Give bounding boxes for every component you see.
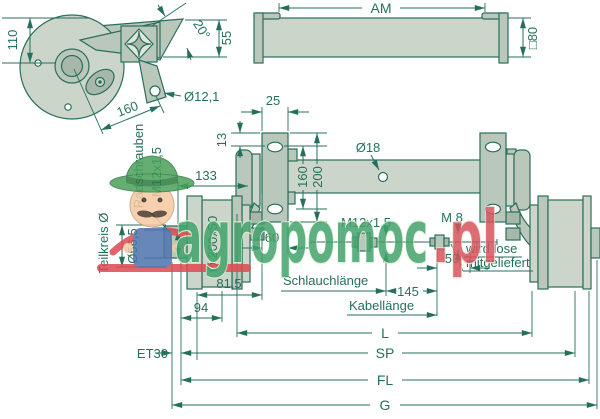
- detail-view-backplate: 110 20° 55 160 Ø12,1: [2, 3, 234, 134]
- dim-am-label: AM: [371, 0, 392, 16]
- dim-94-label: 94: [194, 300, 208, 315]
- right-drum-body: [548, 200, 583, 287]
- dim-13-label: 13: [214, 133, 229, 147]
- plate-hole: [486, 142, 501, 152]
- dim-fl-label: FL: [377, 372, 394, 388]
- right-hub-cap: [591, 228, 600, 258]
- dim-200-label: 200: [310, 166, 325, 188]
- dim-55-label: 55: [219, 31, 234, 45]
- backplate-hole: [65, 104, 71, 110]
- dim-110-label: 110: [5, 30, 20, 51]
- right-pivot-housing: [514, 150, 530, 210]
- mascot-overalls: [133, 228, 172, 268]
- hub-bore: [62, 56, 83, 77]
- lever-arm-detail: [139, 60, 166, 103]
- right-drum-ring2: [530, 205, 538, 282]
- axle-tube: [262, 18, 500, 57]
- watermark-brand-green: agropomoc: [175, 195, 428, 279]
- right-drum-face: [583, 196, 591, 289]
- dim-145-label: 145: [397, 284, 419, 299]
- dim-160-detail-label: 160: [115, 98, 141, 120]
- right-seat-bolt: [506, 228, 520, 240]
- dim-sp-label: SP: [376, 345, 395, 361]
- right-drum-ring1: [538, 196, 548, 289]
- beam-tab: [288, 149, 297, 161]
- end-plate-edge: [499, 13, 508, 63]
- dim-20deg-label: 20°: [190, 17, 213, 42]
- dim-g-label: G: [380, 397, 391, 413]
- dim-l-label: L: [381, 325, 389, 341]
- plate-hole: [268, 142, 283, 152]
- cam-center: [98, 80, 102, 84]
- mascot-eye: [158, 198, 163, 203]
- end-plate-edge: [254, 13, 263, 63]
- watermark-brand-red: .pl: [432, 195, 498, 279]
- dim-160-label: 160: [295, 166, 310, 188]
- dim-80-label: □80: [525, 27, 540, 49]
- dim-133-label: 133: [195, 168, 217, 183]
- right-seat-bolt: [506, 212, 520, 224]
- label-kabellaenge: Kabellänge: [349, 298, 414, 313]
- dim-12-1-label: Ø12,1: [184, 89, 219, 104]
- technical-drawing-axle: 110 20° 55 160 Ø12,1 AM □8: [0, 0, 600, 419]
- right-pivot-bar: [506, 154, 514, 206]
- dim-18-label: Ø18: [356, 140, 381, 155]
- lever-hole: [150, 86, 160, 96]
- mascot-hand: [123, 243, 133, 253]
- mascot-eye: [142, 198, 147, 203]
- tube-view: AM □80: [254, 0, 540, 63]
- dim-25-label: 25: [266, 93, 280, 108]
- beam-hole-18: [379, 173, 388, 182]
